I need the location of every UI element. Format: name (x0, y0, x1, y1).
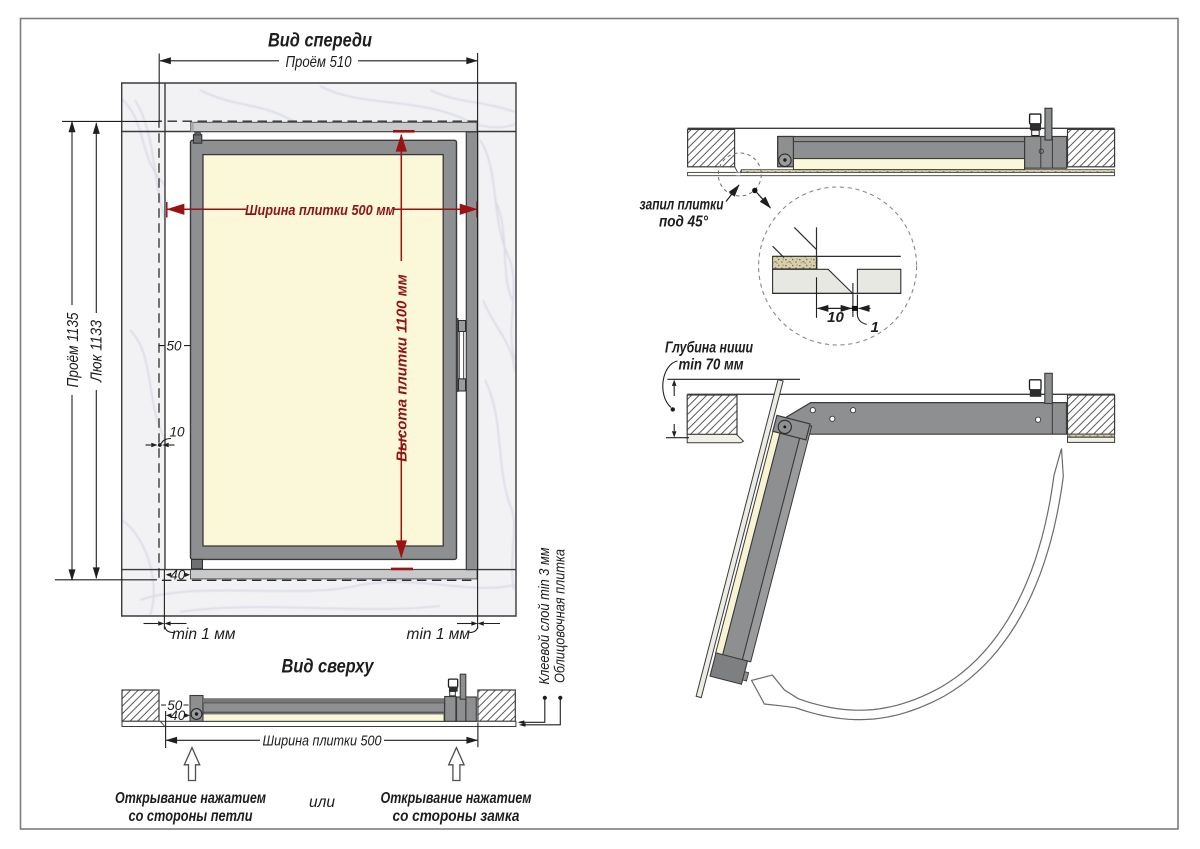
svg-text:Вид спереди: Вид спереди (268, 30, 372, 52)
svg-text:Облицовочная плитка: Облицовочная плитка (552, 549, 569, 683)
svg-text:или: или (309, 794, 335, 811)
svg-text:40: 40 (170, 708, 186, 723)
svg-text:Глубина ниши: Глубина ниши (665, 340, 753, 357)
svg-text:1: 1 (871, 319, 879, 336)
svg-text:min 1 мм: min 1 мм (172, 626, 236, 643)
svg-text:со стороны петли: со стороны петли (129, 808, 253, 825)
svg-text:Проём 510: Проём 510 (286, 54, 352, 71)
svg-text:Открывание нажатием: Открывание нажатием (115, 790, 266, 807)
svg-text:Проём 1135: Проём 1135 (65, 312, 82, 387)
svg-text:50: 50 (166, 339, 182, 354)
svg-text:Вид сверху: Вид сверху (282, 656, 375, 678)
svg-text:Ширина плитки 500 мм: Ширина плитки 500 мм (245, 202, 395, 219)
svg-text:10: 10 (169, 425, 185, 440)
svg-text:со стороны замка: со стороны замка (393, 808, 520, 825)
svg-text:Ширина плитки 500: Ширина плитки 500 (263, 733, 383, 750)
svg-text:min 70 мм: min 70 мм (679, 357, 744, 374)
svg-text:запил плитки: запил плитки (640, 197, 724, 214)
svg-text:Открывание нажатием: Открывание нажатием (381, 790, 532, 807)
svg-text:10: 10 (827, 309, 844, 326)
svg-text:под 45°: под 45° (659, 214, 709, 231)
svg-text:Люк 1133: Люк 1133 (89, 320, 106, 383)
svg-text:Высота плитки 1100 мм: Высота плитки 1100 мм (394, 274, 411, 462)
svg-text:min 1 мм: min 1 мм (407, 626, 471, 643)
svg-text:Клеевой слой min 3 мм: Клеевой слой min 3 мм (536, 548, 553, 685)
svg-text:40: 40 (170, 567, 186, 582)
